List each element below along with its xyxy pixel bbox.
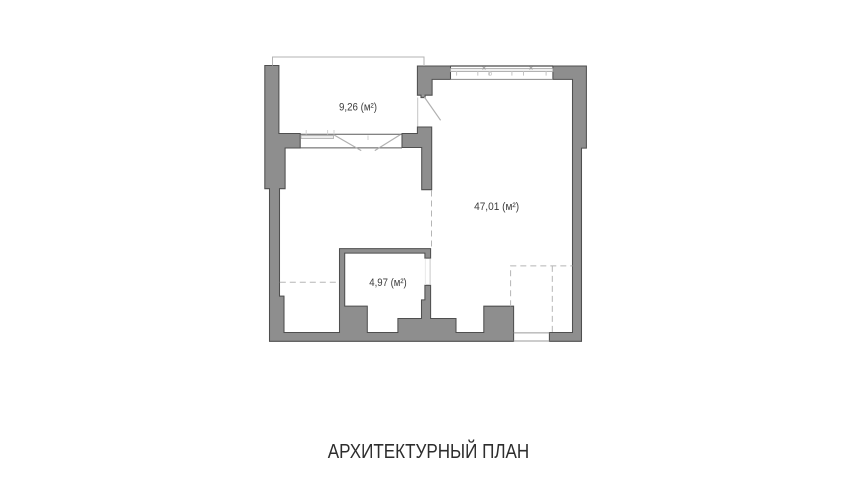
svg-text:9,26 (м²): 9,26 (м²) bbox=[339, 102, 377, 114]
svg-text:47,01 (м²): 47,01 (м²) bbox=[474, 201, 519, 213]
svg-text:АРХИТЕКТУРНЫЙ ПЛАН: АРХИТЕКТУРНЫЙ ПЛАН bbox=[328, 439, 530, 463]
svg-text:4,97 (м²): 4,97 (м²) bbox=[369, 277, 407, 289]
